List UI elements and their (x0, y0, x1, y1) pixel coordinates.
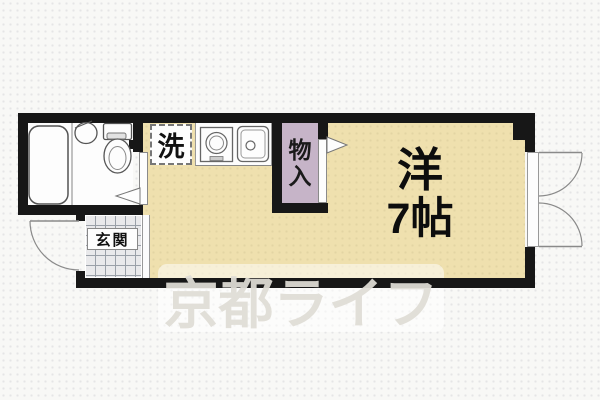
bathroom-door-triangle (116, 188, 140, 204)
floor-plan: 物 入 洗 玄関 洋 7帖 (0, 0, 600, 400)
entrance-label-box: 玄関 (87, 228, 138, 250)
stove-control-bar (210, 157, 223, 161)
balcony-door-upper-arc (539, 153, 582, 196)
watermark: 京都ライフ (156, 266, 446, 332)
room-label: 洋 7帖 (340, 146, 500, 242)
room-name: 洋 (340, 146, 500, 196)
toilet-bowl (104, 139, 131, 173)
entrance-door-arc (30, 221, 79, 270)
washbasin (75, 123, 97, 144)
bathtub (29, 126, 68, 204)
kitchen-sink-drain (246, 141, 255, 150)
room-size: 7帖 (340, 196, 500, 242)
fixtures-layer (0, 0, 600, 400)
toilet-lid (107, 133, 126, 139)
balcony-door-lower-arc (539, 203, 582, 246)
entrance-label: 玄関 (95, 229, 129, 250)
